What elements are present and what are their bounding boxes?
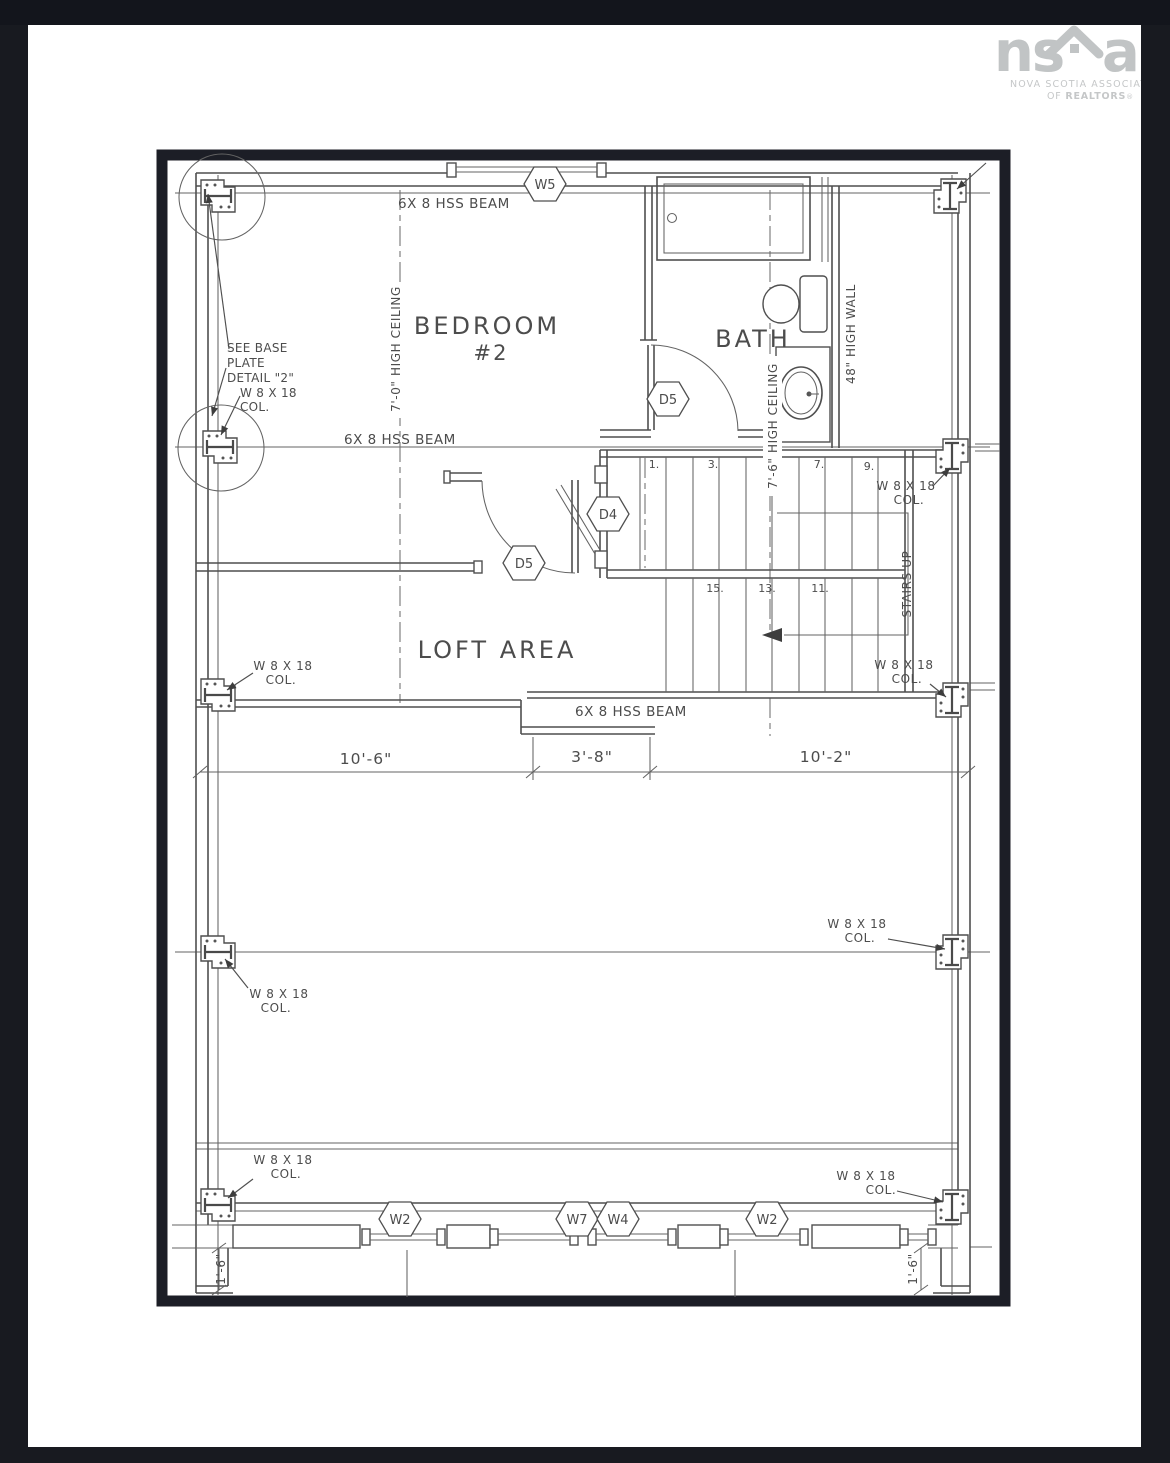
stairs-up-label: STAIRS UP (900, 551, 914, 618)
col-callout-6b: COL. (271, 1167, 302, 1181)
beam-label-3: 6X 8 HSS BEAM (575, 704, 687, 720)
col-callout-3a: W 8 X 18 (874, 658, 933, 672)
beam-label-1: 6X 8 HSS BEAM (398, 196, 510, 212)
window-tag-w4: W4 (597, 1202, 639, 1236)
listing-photo-card: ns ar NOVA SCOTIA ASSOCIATION OF REALTOR… (28, 25, 1141, 1447)
logo-text-ar: ar (1102, 25, 1141, 85)
logo-of: OF (1047, 91, 1065, 102)
dim-10-2: 10'-2" (800, 748, 853, 766)
tag-w2-right-label: W2 (756, 1213, 777, 1228)
loft-label: LOFT AREA (418, 636, 577, 664)
dim-10-6: 10'-6" (340, 750, 393, 768)
tag-d5-loft-label: D5 (515, 557, 533, 572)
stair-number-1: 1. (649, 458, 660, 471)
col-callout-3b: COL. (892, 672, 923, 686)
stair-number-3: 3. (708, 458, 719, 471)
col-callout-6a: W 8 X 18 (253, 1153, 312, 1167)
stair-number-11: 11. (811, 582, 829, 595)
tag-d5-bath-label: D5 (659, 393, 677, 408)
tag-w2-left-label: W2 (389, 1213, 410, 1228)
logo-registered-mark: ® (1126, 93, 1134, 101)
door-tag-d5-loft: D5 (503, 546, 545, 580)
tag-d4-label: D4 (599, 508, 617, 523)
plan-frame (162, 155, 1005, 1301)
col-callout-5a: W 8 X 18 (827, 917, 886, 931)
ceiling-7-6-label: 7'-6" HIGH CEILING (766, 363, 780, 489)
window-tag-w7: W7 (556, 1202, 598, 1236)
base-plate-note-line-1: SEE BASE (227, 341, 288, 355)
logo-tagline-2: OF REALTORS® (1047, 91, 1134, 102)
bath-label: BATH (715, 325, 791, 353)
window-tag-w2-left: W2 (379, 1202, 421, 1236)
base-plate-note-line-5: COL. (240, 400, 270, 414)
window-tag-w2-right: W2 (746, 1202, 788, 1236)
col-callout-4a: W 8 X 18 (249, 987, 308, 1001)
window-tag-w5: W5 (524, 167, 566, 201)
tag-w5-label: W5 (534, 178, 555, 193)
high-wall-label: 48" HIGH WALL (844, 284, 858, 384)
col-callout-2a: W 8 X 18 (253, 659, 312, 673)
dim-1-6-left: 1'-6" (214, 1253, 228, 1284)
page-background: ns ar NOVA SCOTIA ASSOCIATION OF REALTOR… (0, 0, 1170, 1463)
col-callout-1a: W 8 X 18 (876, 479, 935, 493)
col-callout-7b: COL. (866, 1183, 897, 1197)
floor-plan-drawing: ns ar NOVA SCOTIA ASSOCIATION OF REALTOR… (28, 25, 1141, 1447)
bedroom-number-label: #2 (474, 341, 509, 365)
base-plate-note-line-3: DETAIL "2" (227, 371, 294, 385)
door-tag-d5-bath: D5 (647, 382, 689, 416)
stair-number-15: 15. (706, 582, 724, 595)
tag-w4-label: W4 (607, 1213, 628, 1228)
col-callout-2b: COL. (266, 673, 297, 687)
logo-tagline-1: NOVA SCOTIA ASSOCIATION (1010, 79, 1141, 90)
beam-label-2: 6X 8 HSS BEAM (344, 432, 456, 448)
col-callout-7a: W 8 X 18 (836, 1169, 895, 1183)
logo-realtors: REALTORS (1065, 91, 1126, 102)
stair-number-9: 9. (864, 460, 875, 473)
base-plate-note-line-4: W 8 X 18 (240, 386, 297, 400)
tag-w7-label: W7 (566, 1213, 587, 1228)
col-callout-1b: COL. (894, 493, 925, 507)
ceiling-7-0-label: 7'-0" HIGH CEILING (389, 286, 403, 412)
stair-number-7: 7. (814, 458, 825, 471)
bedroom-label: BEDROOM (414, 312, 560, 340)
dim-3-8: 3'-8" (571, 748, 613, 766)
top-dark-band (0, 0, 1170, 25)
stair-number-13: 13. (758, 582, 776, 595)
nsar-logo: ns ar NOVA SCOTIA ASSOCIATION OF REALTOR… (994, 25, 1141, 102)
col-callout-5b: COL. (845, 931, 876, 945)
col-callout-4b: COL. (261, 1001, 292, 1015)
door-tag-d4: D4 (587, 497, 629, 531)
dim-1-6-right: 1'-6" (906, 1253, 920, 1284)
vanity-sink (776, 347, 830, 442)
base-plate-note-line-2: PLATE (227, 356, 265, 370)
